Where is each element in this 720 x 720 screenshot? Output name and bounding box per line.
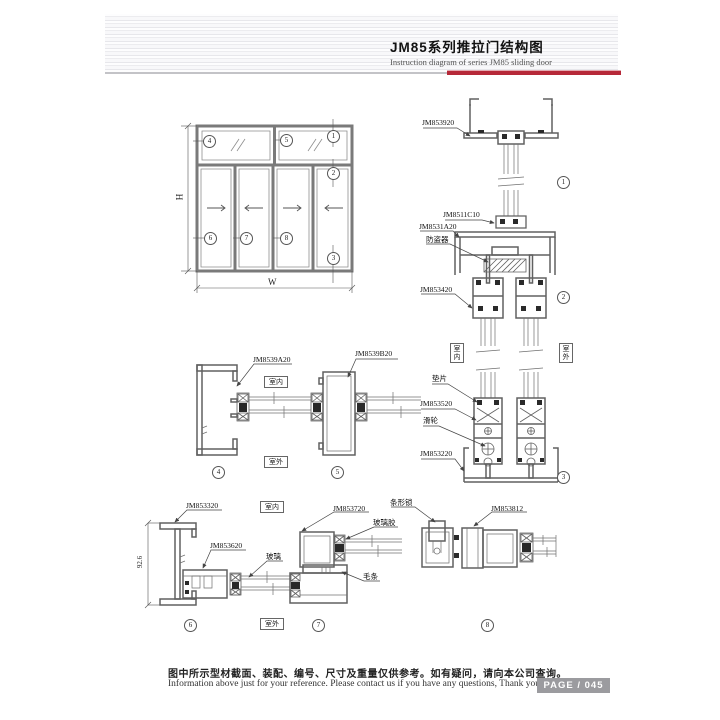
part-label-jm853420: JM853420: [420, 286, 452, 294]
page-number-badge: PAGE / 045: [537, 678, 610, 693]
horizontal-section-drawing-6-7-8: [140, 495, 610, 640]
indoor-label-section4: 室内: [264, 376, 288, 388]
callout-8-elevation: 8: [280, 232, 293, 245]
outdoor-label-vertical: 室外: [559, 343, 573, 363]
horizontal-section-drawing-4-5: [190, 350, 425, 490]
callout-section-4: 4: [212, 466, 225, 479]
part-label-anti-theft-device: 防盗器: [426, 236, 449, 244]
part-label-wool-pile: 毛条: [363, 573, 378, 581]
part-label-glass: 玻璃: [266, 553, 281, 561]
part-label-jm853320: JM853320: [186, 502, 218, 510]
drawing-sheet: JM85系列推拉门结构图 Instruction diagram of seri…: [0, 0, 720, 720]
part-label-jm853220: JM853220: [420, 450, 452, 458]
callout-3-elevation: 3: [327, 252, 340, 265]
part-label-jm8539b20: JM8539B20: [355, 350, 392, 358]
callout-section-7: 7: [312, 619, 325, 632]
part-label-jm8539a20: JM8539A20: [253, 356, 291, 364]
elevation-drawing: [135, 95, 375, 305]
part-label-jm853520: JM853520: [420, 400, 452, 408]
footer-note-cn: 图中所示型材截面、装配、编号、尺寸及重量仅供参考。如有疑问，请向本公司查询。: [168, 665, 588, 680]
part-label-jm8531a20: JM8531A20: [419, 223, 457, 231]
header-title-block: JM85系列推拉门结构图 Instruction diagram of seri…: [390, 36, 620, 67]
page-title: JM85系列推拉门结构图: [390, 36, 620, 56]
callout-section-6: 6: [184, 619, 197, 632]
outdoor-label-section4: 室外: [264, 456, 288, 468]
callout-section-5: 5: [331, 466, 344, 479]
part-label-jm853620: JM853620: [210, 542, 242, 550]
vertical-section-drawing: [420, 90, 620, 500]
page-subtitle: Instruction diagram of series JM85 slidi…: [390, 57, 620, 67]
part-label-jm853920: JM853920: [422, 119, 454, 127]
indoor-label-vertical: 室内: [450, 343, 464, 363]
header-rule-red: [447, 70, 621, 75]
callout-6-elevation: 6: [204, 232, 217, 245]
callout-2-elevation: 2: [327, 167, 340, 180]
callout-section-8: 8: [481, 619, 494, 632]
callout-1-elevation: 1: [327, 130, 340, 143]
callout-section-3: 3: [557, 471, 570, 484]
indoor-label-section6: 室内: [260, 501, 284, 513]
part-label-roller: 滑轮: [423, 417, 438, 425]
callout-section-1: 1: [557, 176, 570, 189]
callout-4-elevation: 4: [203, 135, 216, 148]
header-rule-gray: [105, 72, 447, 74]
part-label-gasket: 垫片: [432, 375, 447, 383]
dim-jamb-height-label: 92.6: [136, 556, 144, 568]
callout-7-elevation: 7: [240, 232, 253, 245]
outdoor-label-section6: 室外: [260, 618, 284, 630]
callout-5-elevation: 5: [280, 134, 293, 147]
part-label-jm8511c10: JM8511C10: [443, 211, 480, 219]
footer-note-en: Information above just for your referenc…: [168, 679, 588, 689]
part-label-strip-lock: 条形锁: [390, 499, 413, 507]
part-label-jm853720: JM853720: [333, 505, 365, 513]
dim-height-label: H: [174, 194, 184, 201]
dim-width-label: W: [268, 277, 277, 287]
part-label-glass-sealant: 玻璃胶: [373, 519, 396, 527]
callout-section-2: 2: [557, 291, 570, 304]
part-label-jm853812: JM853812: [491, 505, 523, 513]
